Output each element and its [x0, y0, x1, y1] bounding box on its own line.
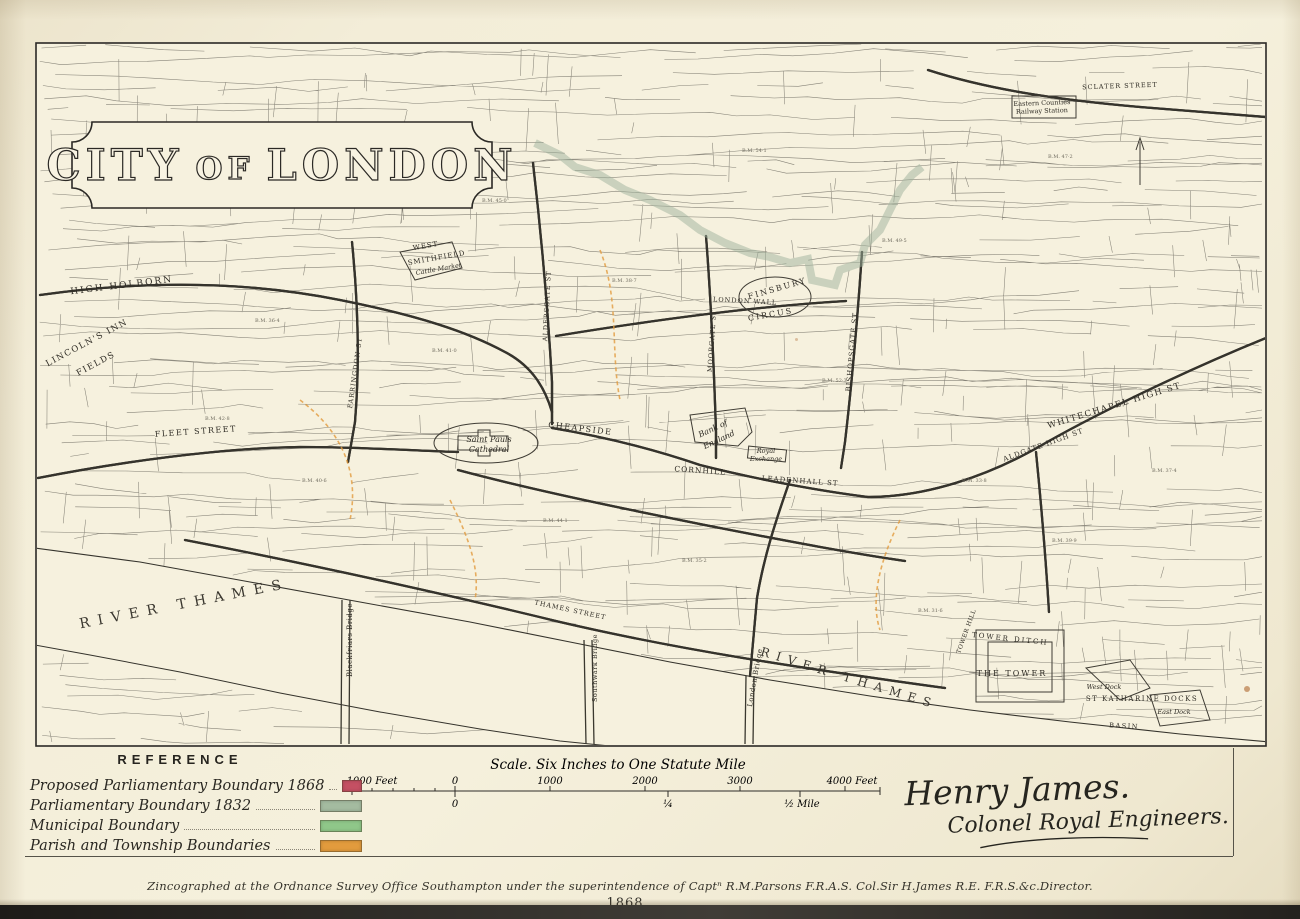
legend-row-parliamentary-1832: Parliamentary Boundary 1832 [30, 794, 362, 814]
scale-tick-label: 4000 Feet [826, 776, 879, 787]
scale-tick-label: 2000 [631, 776, 658, 787]
scale-bar-line [352, 786, 880, 797]
paper-speck [795, 338, 798, 341]
map-label: THE TOWER [977, 669, 1048, 678]
benchmark-label: B.M. 40·6 [302, 478, 327, 484]
color-swatch-parish [320, 840, 362, 852]
scale-tick-label: 0 [452, 776, 459, 787]
color-swatch-parliamentary-1832 [320, 800, 362, 812]
imprint-line: Zincographed at the Ordnance Survey Offi… [0, 879, 1240, 893]
scale-tick-label: 0 [452, 799, 459, 810]
benchmark-label: B.M. 37·4 [1152, 468, 1177, 474]
margin-rule-vertical [1233, 748, 1234, 856]
benchmark-label: B.M. 42·8 [205, 416, 230, 422]
legend-row-proposed-1868: Proposed Parliamentary Boundary 1868 [30, 774, 362, 794]
map-label: Royal [756, 447, 775, 455]
signature-block: Henry James. Colonel Royal Engineers. [904, 762, 1267, 855]
dotted-leader [329, 789, 337, 790]
dotted-leader [184, 829, 315, 830]
reference-legend: REFERENCE Proposed Parliamentary Boundar… [30, 752, 362, 854]
dotted-leader [276, 849, 316, 850]
map-label: Southwark Bridge [591, 634, 599, 702]
benchmark-label: B.M. 41·0 [432, 348, 457, 354]
photo-background-edge [0, 905, 1300, 919]
benchmark-label: B.M. 38·7 [612, 278, 637, 284]
map-label: Saint Pauls [466, 435, 511, 444]
map-label: Exchange [749, 455, 782, 463]
map-label: West Dock [1087, 683, 1122, 691]
color-swatch-proposed-1868 [342, 780, 362, 792]
benchmark-label: B.M. 52·3 [822, 378, 847, 384]
scale-labels: 1000 Feet01000200030004000 Feet0¼½ Mile [347, 776, 879, 810]
legend-label: Proposed Parliamentary Boundary 1868 [30, 778, 324, 794]
scale-tick-label: 3000 [727, 776, 753, 787]
scale-tick-label: ¼ [663, 799, 673, 810]
scale-tick-label: ½ Mile [784, 799, 820, 810]
legend-label: Municipal Boundary [30, 818, 179, 834]
legend-label: Parliamentary Boundary 1832 [30, 798, 251, 814]
map-label: BASIN [1109, 721, 1139, 731]
legend-heading: REFERENCE [30, 752, 330, 767]
scale-bar: Scale. Six Inches to One Statute Mile 10… [347, 757, 880, 810]
legend-row-municipal: Municipal Boundary [30, 814, 362, 834]
benchmark-label: B.M. 31·6 [918, 608, 943, 614]
benchmark-label: B.M. 49·5 [882, 238, 907, 244]
map-label: ST KATHARINE DOCKS [1086, 695, 1198, 703]
benchmark-label: B.M. 35·2 [682, 558, 707, 564]
color-swatch-municipal [320, 820, 362, 832]
dotted-leader [256, 809, 315, 810]
map-label: East Dock [1156, 708, 1190, 716]
benchmark-label: B.M. 44·1 [543, 518, 568, 524]
paper-speck [1244, 686, 1250, 692]
map-sheet: CITYOFLONDON HIGH HOLBORNLINCOLN'S INNFI… [0, 0, 1300, 919]
scale-tick-label: 1000 [537, 776, 563, 787]
benchmark-label: B.M. 39·9 [1052, 538, 1077, 544]
page-title: CITYOFLONDON [46, 141, 517, 191]
margin-rule-horizontal [25, 856, 1233, 857]
benchmark-label: B.M. 36·4 [255, 318, 280, 324]
legend-row-parish: Parish and Township Boundaries [30, 834, 362, 854]
benchmark-label: B.M. 47·2 [1048, 154, 1073, 160]
benchmark-label: B.M. 45·0 [482, 198, 507, 204]
benchmark-label: B.M. 54·1 [742, 148, 767, 154]
legend-label: Parish and Township Boundaries [30, 838, 271, 854]
scale-title: Scale. Six Inches to One Statute Mile [490, 757, 746, 773]
benchmark-label: B.M. 33·8 [962, 478, 987, 484]
map-label: Cathedral [469, 445, 510, 454]
map-label: Blackfriars Bridge [346, 603, 354, 677]
